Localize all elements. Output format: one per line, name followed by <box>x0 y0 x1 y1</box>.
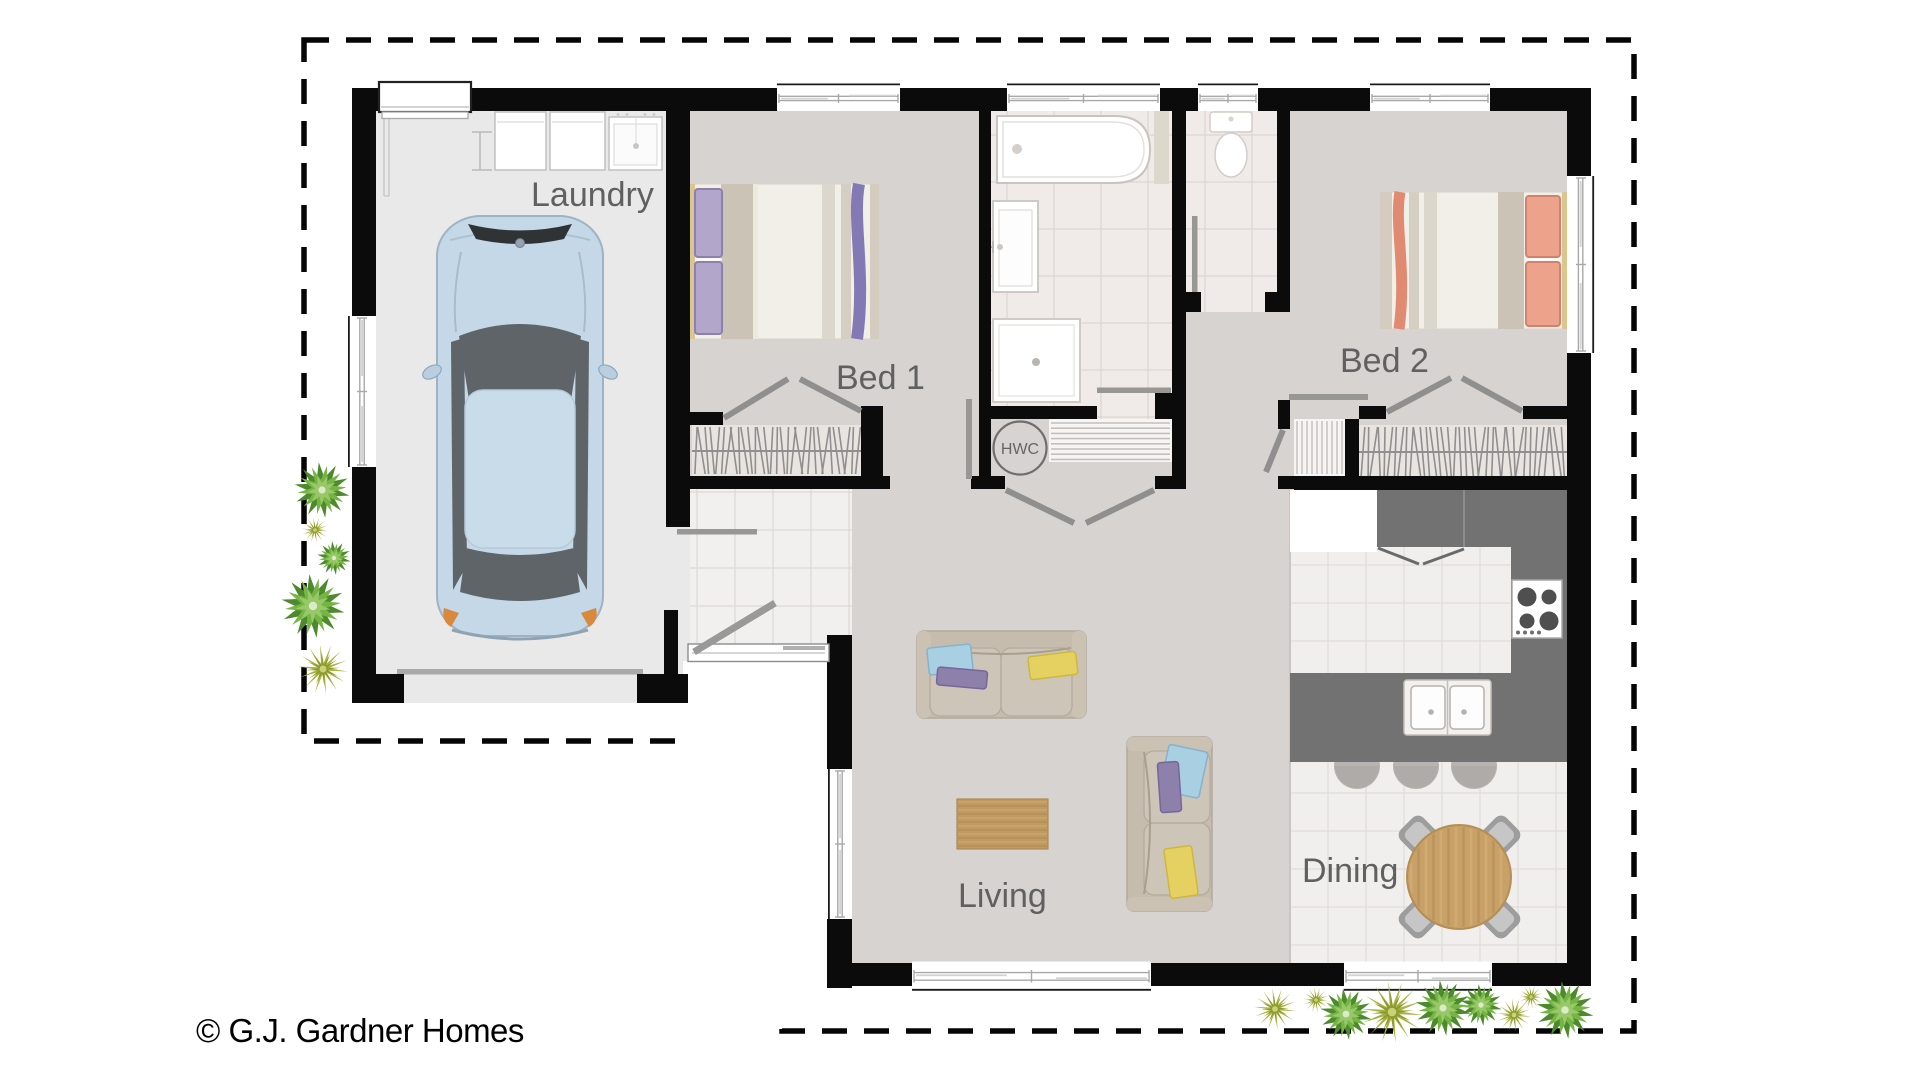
svg-text:© G.J. Gardner Homes: © G.J. Gardner Homes <box>196 1012 524 1049</box>
svg-text:HWC: HWC <box>1001 441 1039 458</box>
svg-text:Dining: Dining <box>1302 852 1398 890</box>
svg-text:Living: Living <box>958 877 1047 915</box>
svg-text:Bed 2: Bed 2 <box>1340 342 1429 380</box>
svg-text:Bed 1: Bed 1 <box>836 359 925 397</box>
svg-text:Laundry: Laundry <box>531 176 654 214</box>
